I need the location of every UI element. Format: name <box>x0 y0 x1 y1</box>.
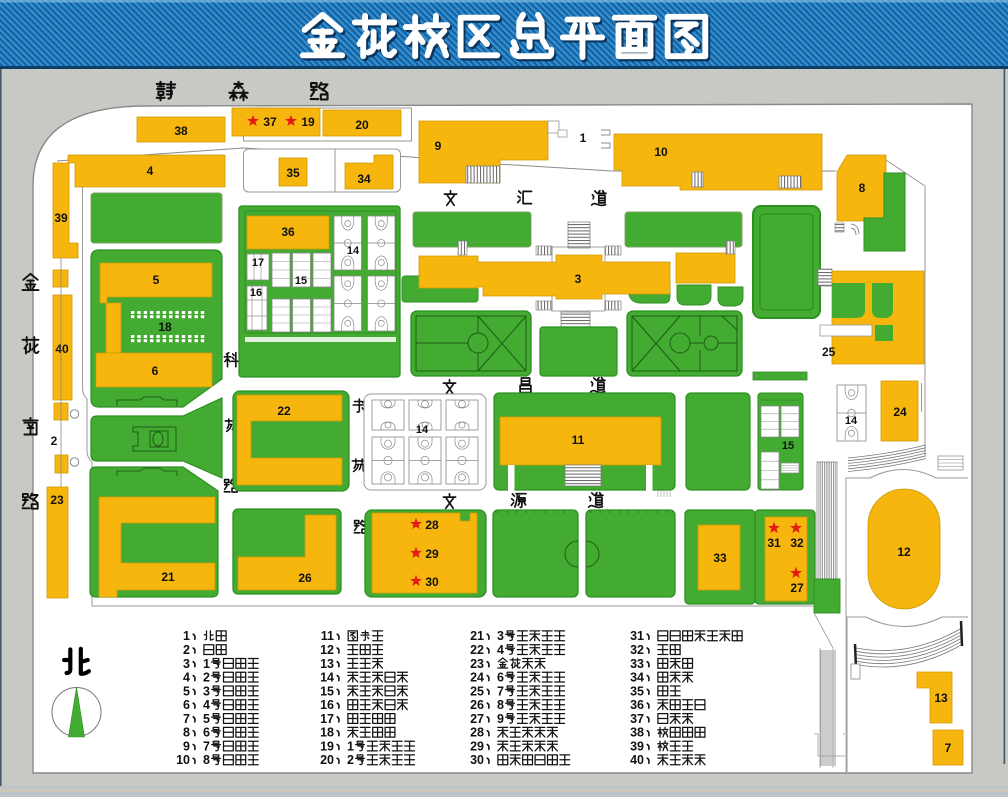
svg-text:1: 1 <box>580 131 587 145</box>
svg-text:6: 6 <box>497 671 504 685</box>
svg-text:28: 28 <box>425 518 439 532</box>
svg-text:25: 25 <box>470 684 484 698</box>
svg-text:8: 8 <box>859 181 866 195</box>
svg-text:5: 5 <box>153 273 160 287</box>
svg-text:2: 2 <box>347 753 354 767</box>
svg-text:18: 18 <box>158 320 172 334</box>
svg-text:7: 7 <box>183 712 190 726</box>
svg-text:33: 33 <box>630 657 644 671</box>
svg-text:34: 34 <box>357 172 371 186</box>
svg-text:22: 22 <box>277 404 291 418</box>
svg-text:26: 26 <box>298 571 312 585</box>
svg-text:16: 16 <box>250 287 262 299</box>
svg-text:29: 29 <box>425 547 439 561</box>
svg-text:20: 20 <box>320 753 334 767</box>
svg-text:32: 32 <box>630 643 644 657</box>
svg-text:17: 17 <box>252 257 264 269</box>
svg-text:14: 14 <box>845 415 858 427</box>
svg-text:34: 34 <box>630 671 644 685</box>
svg-text:27: 27 <box>790 581 804 595</box>
svg-text:4: 4 <box>203 698 210 712</box>
svg-text:8: 8 <box>203 753 210 767</box>
svg-text:19: 19 <box>320 739 334 753</box>
svg-text:4: 4 <box>183 671 190 685</box>
svg-text:24: 24 <box>893 405 907 419</box>
svg-text:35: 35 <box>286 166 300 180</box>
svg-text:8: 8 <box>497 698 504 712</box>
svg-text:6: 6 <box>203 726 210 740</box>
svg-text:39: 39 <box>630 739 644 753</box>
svg-text:22: 22 <box>470 643 484 657</box>
svg-text:12: 12 <box>897 545 911 559</box>
svg-text:23: 23 <box>50 493 64 507</box>
svg-text:2: 2 <box>203 671 210 685</box>
svg-text:14: 14 <box>320 671 334 685</box>
svg-text:7: 7 <box>945 741 952 755</box>
svg-text:20: 20 <box>355 118 369 132</box>
svg-text:21: 21 <box>470 629 484 643</box>
svg-text:1: 1 <box>347 739 354 753</box>
svg-text:7: 7 <box>203 739 210 753</box>
svg-text:8: 8 <box>183 726 190 740</box>
svg-text:30: 30 <box>470 753 484 767</box>
svg-text:31: 31 <box>767 536 781 550</box>
svg-text:40: 40 <box>55 342 69 356</box>
svg-text:15: 15 <box>295 275 307 287</box>
svg-text:15: 15 <box>782 440 794 452</box>
svg-text:6: 6 <box>183 698 190 712</box>
svg-text:38: 38 <box>174 124 188 138</box>
svg-text:37: 37 <box>630 712 644 726</box>
svg-text:7: 7 <box>497 684 504 698</box>
svg-text:3: 3 <box>183 657 190 671</box>
svg-text:4: 4 <box>147 164 154 178</box>
svg-text:11: 11 <box>321 629 334 643</box>
svg-text:21: 21 <box>161 570 175 584</box>
svg-text:10: 10 <box>654 145 668 159</box>
svg-text:36: 36 <box>630 698 644 712</box>
svg-text:19: 19 <box>301 115 315 129</box>
svg-text:32: 32 <box>790 536 804 550</box>
svg-text:28: 28 <box>470 726 484 740</box>
svg-text:18: 18 <box>320 726 334 740</box>
svg-text:31: 31 <box>630 629 644 643</box>
svg-text:33: 33 <box>713 551 727 565</box>
svg-text:12: 12 <box>320 643 334 657</box>
svg-text:30: 30 <box>425 575 439 589</box>
svg-text:25: 25 <box>822 345 836 359</box>
svg-text:3: 3 <box>203 684 210 698</box>
svg-text:6: 6 <box>152 364 159 378</box>
svg-text:2: 2 <box>183 643 190 657</box>
svg-text:36: 36 <box>281 225 295 239</box>
svg-text:14: 14 <box>416 424 429 436</box>
svg-text:13: 13 <box>320 657 334 671</box>
svg-text:27: 27 <box>470 712 484 726</box>
svg-text:3: 3 <box>575 272 582 286</box>
svg-text:26: 26 <box>470 698 484 712</box>
svg-text:1: 1 <box>203 657 210 671</box>
svg-text:40: 40 <box>630 753 644 767</box>
svg-text:14: 14 <box>347 245 360 257</box>
svg-text:35: 35 <box>630 684 644 698</box>
svg-text:13: 13 <box>934 691 948 705</box>
svg-text:9: 9 <box>435 139 442 153</box>
svg-text:23: 23 <box>470 657 484 671</box>
svg-text:17: 17 <box>320 712 334 726</box>
svg-text:1: 1 <box>183 629 190 643</box>
svg-text:5: 5 <box>203 712 210 726</box>
svg-text:38: 38 <box>630 726 644 740</box>
svg-text:9: 9 <box>497 712 504 726</box>
svg-text:24: 24 <box>470 671 484 685</box>
svg-text:11: 11 <box>572 433 585 447</box>
svg-text:37: 37 <box>263 115 277 129</box>
svg-text:10: 10 <box>176 753 190 767</box>
svg-text:9: 9 <box>183 739 190 753</box>
svg-text:16: 16 <box>320 698 334 712</box>
svg-text:39: 39 <box>54 211 68 225</box>
svg-text:29: 29 <box>470 739 484 753</box>
svg-text:4: 4 <box>497 643 504 657</box>
svg-text:3: 3 <box>497 629 504 643</box>
svg-text:15: 15 <box>320 684 334 698</box>
svg-text:5: 5 <box>183 684 190 698</box>
svg-text:2: 2 <box>51 434 58 448</box>
